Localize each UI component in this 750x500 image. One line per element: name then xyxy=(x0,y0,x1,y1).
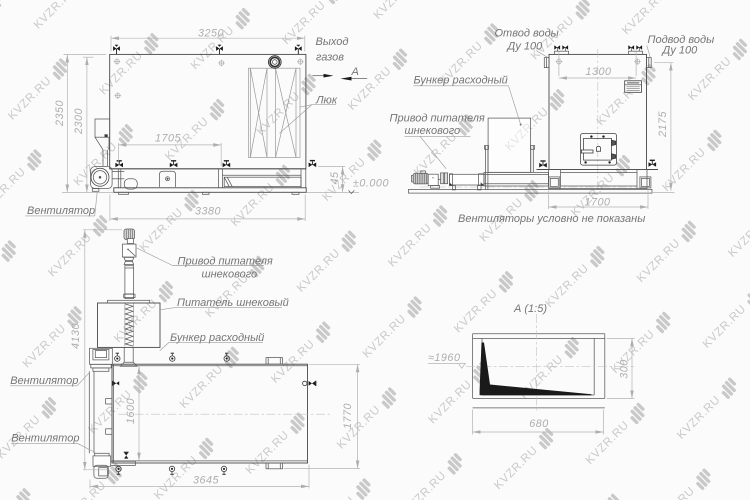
svg-text:680: 680 xyxy=(529,418,549,430)
svg-text:Вентилятор: Вентилятор xyxy=(27,205,95,217)
svg-text:шнекового: шнекового xyxy=(202,269,258,281)
svg-text:Отвод воды: Отвод воды xyxy=(495,27,559,39)
svg-text:2300: 2300 xyxy=(73,108,85,135)
svg-text:Ду 100: Ду 100 xyxy=(506,41,544,53)
svg-text:300: 300 xyxy=(619,359,631,379)
svg-text:3645: 3645 xyxy=(193,475,220,487)
svg-text:1770: 1770 xyxy=(342,403,354,429)
svg-text:Ду 100: Ду 100 xyxy=(661,45,699,57)
svg-text:Бункер расходный: Бункер расходный xyxy=(414,75,508,87)
svg-text:≈1960: ≈1960 xyxy=(428,352,460,364)
svg-text:2175: 2175 xyxy=(657,111,669,139)
svg-text:шнекового: шнекового xyxy=(405,125,461,137)
svg-text:±0.000: ±0.000 xyxy=(353,178,389,190)
svg-text:1700: 1700 xyxy=(584,196,610,208)
svg-text:Привод питателя: Привод питателя xyxy=(390,113,485,125)
svg-text:Вентилятор: Вентилятор xyxy=(10,375,78,387)
svg-text:45: 45 xyxy=(329,171,341,185)
svg-text:Вентиляторы условно не показан: Вентиляторы условно не показаны xyxy=(458,213,645,225)
svg-text:4130: 4130 xyxy=(70,323,82,349)
svg-text:2350: 2350 xyxy=(54,100,66,127)
svg-text:Выход: Выход xyxy=(316,36,349,48)
svg-text:1600: 1600 xyxy=(125,398,137,424)
svg-text:Вентилятор: Вентилятор xyxy=(11,433,79,445)
svg-text:1300: 1300 xyxy=(585,66,611,78)
svg-text:1705: 1705 xyxy=(155,132,182,144)
svg-text:А (1:5): А (1:5) xyxy=(513,303,547,315)
svg-text:А: А xyxy=(351,66,359,78)
svg-text:3250: 3250 xyxy=(198,27,224,39)
svg-text:газов: газов xyxy=(316,51,344,63)
svg-text:3380: 3380 xyxy=(195,206,221,218)
